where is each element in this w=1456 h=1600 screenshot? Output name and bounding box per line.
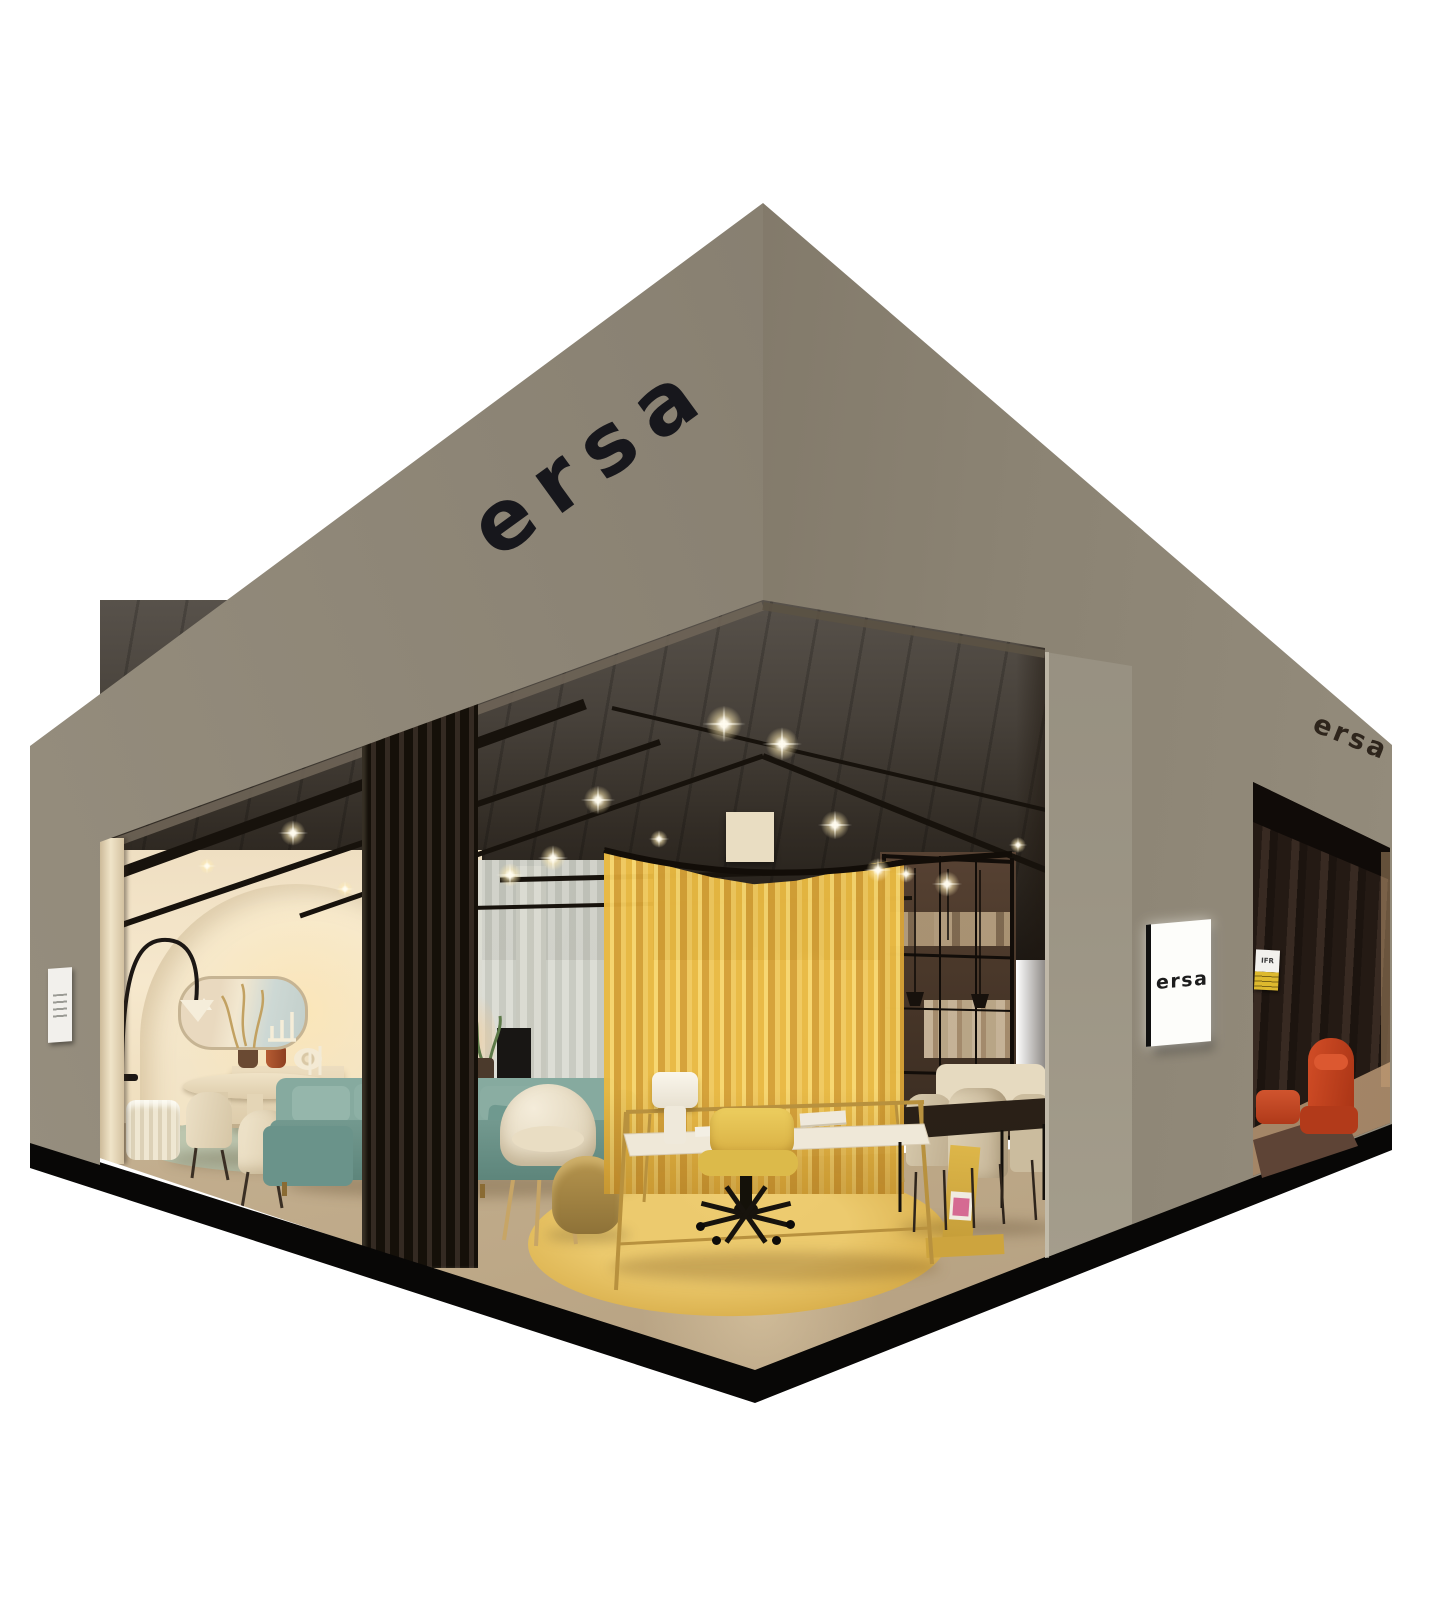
desk-lamp-body	[664, 1106, 686, 1144]
spotlight-2	[198, 857, 216, 875]
ifr-badge: IFR	[1254, 949, 1280, 990]
spotlight-6	[582, 784, 614, 816]
office-chair-seat	[698, 1150, 798, 1176]
red-chair-seat	[1300, 1106, 1358, 1134]
spotlight-12	[896, 864, 916, 884]
chair-caster-3	[712, 1236, 721, 1245]
spotlight-1	[279, 819, 308, 848]
spotlight-4	[497, 862, 524, 889]
doorway-jamb-light	[1381, 852, 1390, 1087]
exhibition-booth-photo: ersa ersa IFR ersa	[0, 0, 1456, 1600]
left-wall-sign-text-rows	[53, 994, 67, 1021]
spotlight-8	[703, 703, 744, 744]
pillar-edge-highlight	[1045, 652, 1049, 1258]
ifr-badge-bottom	[1254, 971, 1279, 990]
spotlight-14	[1009, 836, 1027, 854]
spotlight-10	[819, 809, 851, 841]
spotlight-7	[649, 829, 669, 849]
spotlight-11	[865, 857, 892, 884]
chair-caster-2	[786, 1220, 795, 1229]
red-chair-headrest	[1314, 1054, 1348, 1070]
red-ottoman	[1256, 1090, 1300, 1124]
ifr-badge-top: IFR	[1255, 949, 1280, 972]
desk-lamp-shade	[652, 1072, 698, 1108]
spotlight-13	[933, 870, 962, 899]
spotlight-9	[763, 725, 801, 763]
spotlight-5	[539, 844, 568, 873]
pillar-sign-text: ersa	[1156, 967, 1208, 994]
chair-caster-1	[696, 1222, 705, 1231]
chair-caster-4	[772, 1236, 781, 1245]
spotlight-3	[336, 880, 354, 898]
pillar-sign: ersa	[1146, 919, 1211, 1047]
